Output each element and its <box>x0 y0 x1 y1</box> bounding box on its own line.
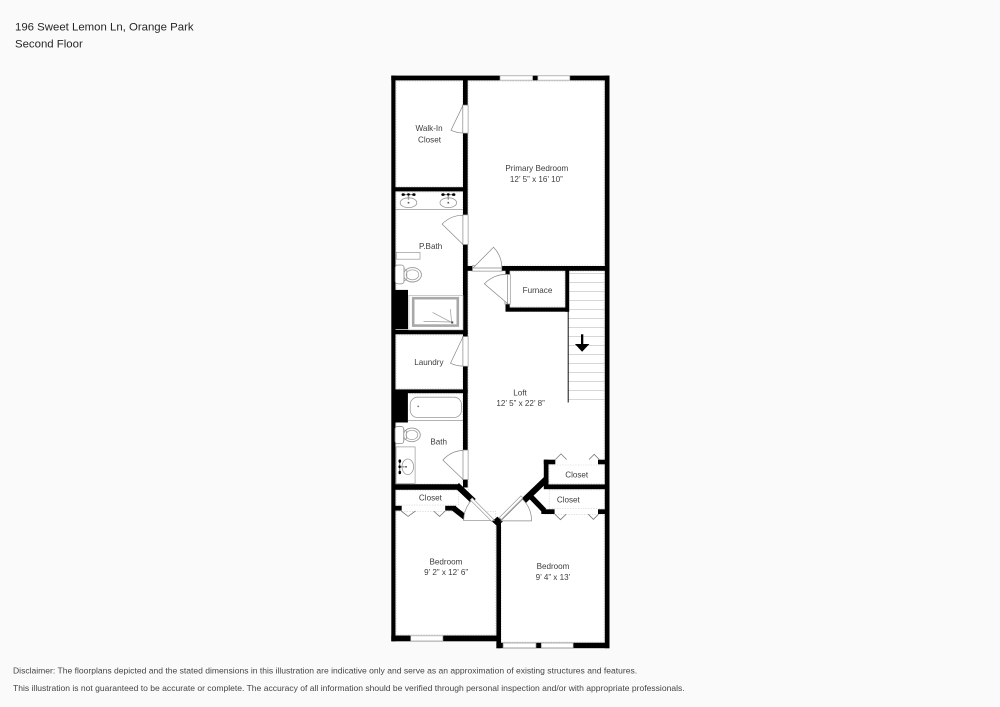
svg-text:Closet: Closet <box>419 494 443 503</box>
svg-text:Closet: Closet <box>418 135 442 144</box>
svg-text:Bedroom: Bedroom <box>537 562 570 571</box>
svg-text:P.Bath: P.Bath <box>419 242 442 251</box>
svg-text:Bath: Bath <box>430 437 447 446</box>
svg-text:This illustration is not guara: This illustration is not guaranteed to b… <box>13 683 685 693</box>
svg-text:Primary Bedroom: Primary Bedroom <box>505 164 568 173</box>
svg-text:Closet: Closet <box>557 495 581 504</box>
svg-text:196 Sweet Lemon Ln, Orange Par: 196 Sweet Lemon Ln, Orange Park <box>15 22 194 34</box>
svg-text:Disclaimer: The floorplans dep: Disclaimer: The floorplans depicted and … <box>13 666 637 676</box>
svg-text:9’ 2” x 12’ 6”: 9’ 2” x 12’ 6” <box>424 568 468 577</box>
svg-text:Furnace: Furnace <box>523 286 553 295</box>
svg-text:12’ 5” x 22’ 8”: 12’ 5” x 22’ 8” <box>496 399 545 408</box>
svg-text:Laundry: Laundry <box>414 358 444 367</box>
svg-text:Second Floor: Second Floor <box>15 39 83 51</box>
svg-text:Closet: Closet <box>565 470 589 479</box>
svg-text:Walk-In: Walk-In <box>416 124 443 133</box>
svg-text:12’ 5” x 16’ 10”: 12’ 5” x 16’ 10” <box>510 175 563 184</box>
svg-text:9’ 4” x 13’: 9’ 4” x 13’ <box>536 573 571 582</box>
svg-text:Bedroom: Bedroom <box>429 557 462 566</box>
svg-text:Loft: Loft <box>513 388 527 397</box>
